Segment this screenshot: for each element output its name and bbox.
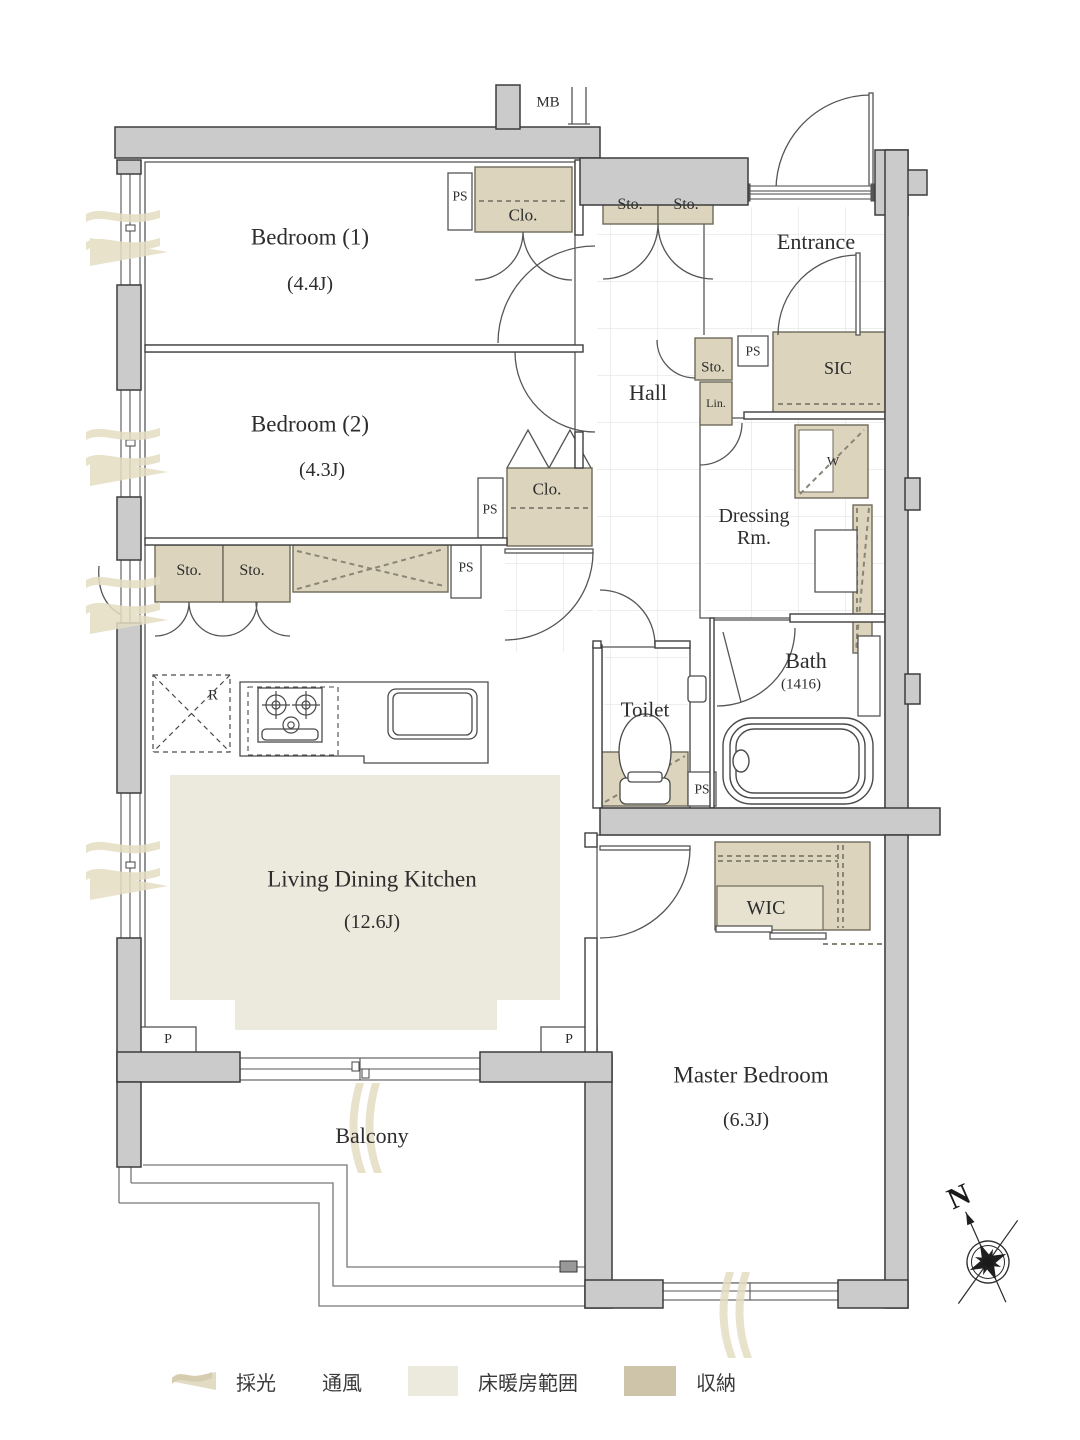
bathtub [723,718,873,804]
compass-north-label: N [942,1177,976,1216]
legend: 採光 通風 床暖房範囲 収納 [170,1366,736,1396]
room-label-toilet: Toilet [621,700,670,721]
label-storage-2: Sto. [673,197,698,213]
ventilation-icon [170,1366,214,1386]
label-refrigerator: R [208,689,218,704]
legend-label-storage: 収納 [696,1367,736,1396]
balcony-railing [119,1165,585,1306]
label-storage-3: Sto. [701,361,725,376]
room-label-sic: SIC [824,359,852,377]
legend-label-daylight: 採光 [236,1367,276,1396]
room-label-dressing-line1: Dressing [718,506,789,526]
label-storage-4: Sto. [176,563,201,579]
label-meter-box: MB [536,96,559,111]
label-ps-4: PS [745,344,760,358]
vanity [815,530,857,592]
room-label-ldk: Living Dining Kitchen [267,868,477,891]
floor-plan: N Bedroom (1) (4.4J) Bedroom (2) (4.3J) … [0,0,1080,1440]
legend-label-ventilation: 通風 [322,1367,362,1396]
room-label-bedroom2: Bedroom (2) [251,413,369,436]
label-closet-2: Clo. [533,481,562,498]
room-label-wic: WIC [747,898,786,918]
storage-icon [624,1366,676,1396]
legend-item-floor-heating: 床暖房範囲 [408,1366,578,1396]
room-label-hall: Hall [629,382,667,404]
legend-item-ventilation: 通風 [322,1367,362,1396]
label-ps-3: PS [458,560,473,574]
floor-heating-icon [408,1366,458,1396]
refrigerator [153,675,230,752]
label-ps-2: PS [482,502,497,516]
label-washer: W [827,455,839,468]
legend-item-storage: 収納 [624,1366,736,1396]
floorplan-drawing: N [0,0,1080,1440]
room-size-bath: (1416) [781,678,821,693]
balcony-drain [560,1261,577,1272]
legend-label-floor-heating: 床暖房範囲 [478,1367,578,1396]
room-label-dressing-line2: Rm. [737,528,771,548]
label-linen: Lin. [706,397,726,409]
label-ps-1: PS [452,189,467,203]
room-label-bath: Bath [785,650,827,672]
room-label-master-bedroom: Master Bedroom [673,1064,828,1087]
room-size-bedroom2: (4.3J) [299,460,345,480]
label-pipe-1: P [164,1033,172,1047]
floor-heating-area [170,775,560,1030]
room-size-ldk: (12.6J) [344,912,400,932]
kitchen-counter [240,682,488,763]
label-pipe-2: P [565,1033,573,1047]
bath-counter [858,636,880,716]
compass-icon: N [912,1164,1046,1320]
label-storage-1: Sto. [617,197,642,213]
room-label-bedroom1: Bedroom (1) [251,226,369,249]
label-ps-5: PS [694,782,709,796]
room-label-entrance: Entrance [777,231,855,253]
room-size-bedroom1: (4.4J) [287,274,333,294]
label-closet-1: Clo. [509,207,538,224]
room-size-master-bedroom: (6.3J) [723,1110,769,1130]
room-label-balcony: Balcony [335,1125,408,1147]
meter-box-pipe [568,87,590,124]
label-storage-5: Sto. [239,563,264,579]
